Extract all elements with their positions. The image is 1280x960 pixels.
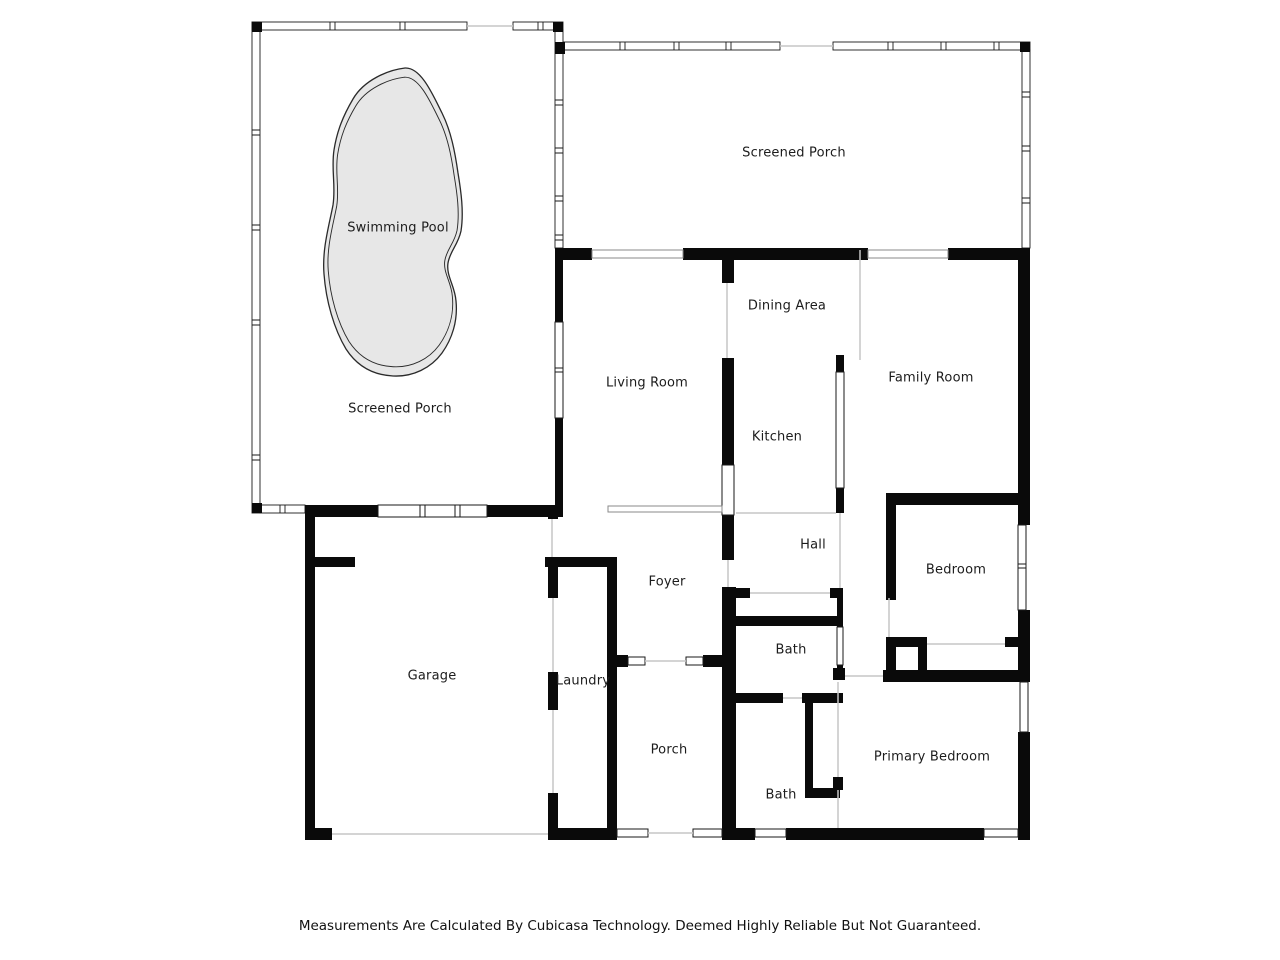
room-label-swimming-pool: Swimming Pool bbox=[347, 221, 449, 236]
room-label-garage: Garage bbox=[408, 669, 457, 684]
room-label-family-room: Family Room bbox=[888, 371, 973, 386]
room-label-primary-bedroom: Primary Bedroom bbox=[874, 750, 990, 765]
room-label-porch: Porch bbox=[651, 743, 688, 758]
room-label-dining-area: Dining Area bbox=[748, 299, 826, 314]
disclaimer-text: Measurements Are Calculated By Cubicasa … bbox=[0, 918, 1280, 934]
room-label-laundry: Laundry bbox=[556, 674, 610, 689]
room-label-hall: Hall bbox=[800, 538, 826, 553]
room-label-screened-porch-pool: Screened Porch bbox=[348, 402, 452, 417]
room-label-screened-porch-top: Screened Porch bbox=[742, 146, 846, 161]
room-label-foyer: Foyer bbox=[648, 575, 685, 590]
room-label-bedroom: Bedroom bbox=[926, 563, 986, 578]
room-label-living-room: Living Room bbox=[606, 376, 688, 391]
floor-plan: Swimming Pool Screened Porch Screened Po… bbox=[0, 0, 1280, 960]
room-label-bath-upper: Bath bbox=[775, 643, 806, 658]
room-label-kitchen: Kitchen bbox=[752, 430, 802, 445]
room-label-bath-lower: Bath bbox=[765, 788, 796, 803]
floor-plan-drawing bbox=[0, 0, 1280, 960]
